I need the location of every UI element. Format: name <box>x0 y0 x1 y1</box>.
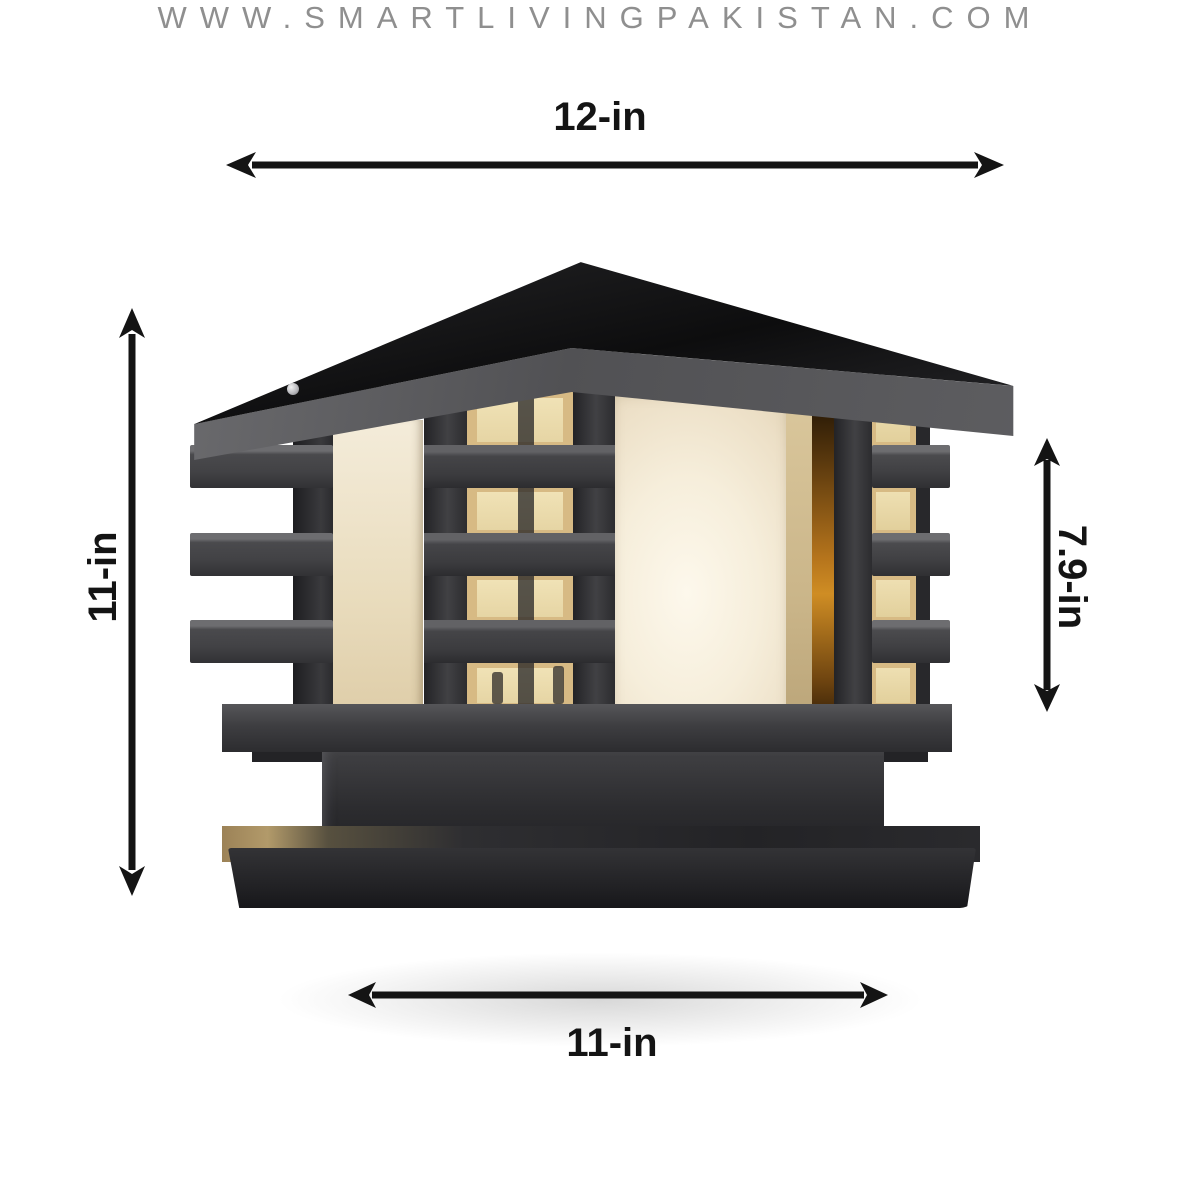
dimension-label-left: 11-in <box>79 502 127 652</box>
lamp-front-glass-panel <box>615 382 786 746</box>
lamp-bulb-pin <box>553 666 564 704</box>
dimension-label-top: 12-in <box>450 92 750 142</box>
lamp-right-slat <box>872 445 950 488</box>
lamp-grid-bar <box>424 533 615 576</box>
product-dimension-image: 12-in 11-in 7.9-in 11-in WWW.SMARTLIVING… <box>0 0 1200 1200</box>
lamp-left-slat <box>190 620 333 663</box>
screw-icon <box>287 383 299 395</box>
dimension-arrow-bottom <box>344 978 892 1012</box>
lamp-left-side-glass <box>333 420 423 742</box>
lamp-grid-pane <box>876 580 910 617</box>
lamp-grid-pane <box>876 668 910 703</box>
lamp-left-slat <box>190 533 333 576</box>
watermark-text: WWW.SMARTLIVINGPAKISTAN.COM <box>0 0 1200 36</box>
lamp-bottom-band <box>222 704 952 752</box>
lamp-grid-bar <box>424 445 615 488</box>
dimension-label-right: 7.9-in <box>1048 502 1096 652</box>
lamp-base <box>228 848 976 908</box>
lamp-grid-rail <box>834 384 872 746</box>
lamp-bulb-pin <box>492 672 503 704</box>
lamp-right-slat <box>872 620 950 663</box>
lamp-grid-bar <box>424 620 615 663</box>
lamp-inner-glow-gap <box>812 384 834 746</box>
dimension-arrow-top <box>222 148 1008 182</box>
dimension-label-bottom: 11-in <box>462 1018 762 1068</box>
lamp-glass-edge <box>786 384 812 746</box>
lamp-right-slat <box>872 533 950 576</box>
lamp-grid-pane <box>876 492 910 530</box>
